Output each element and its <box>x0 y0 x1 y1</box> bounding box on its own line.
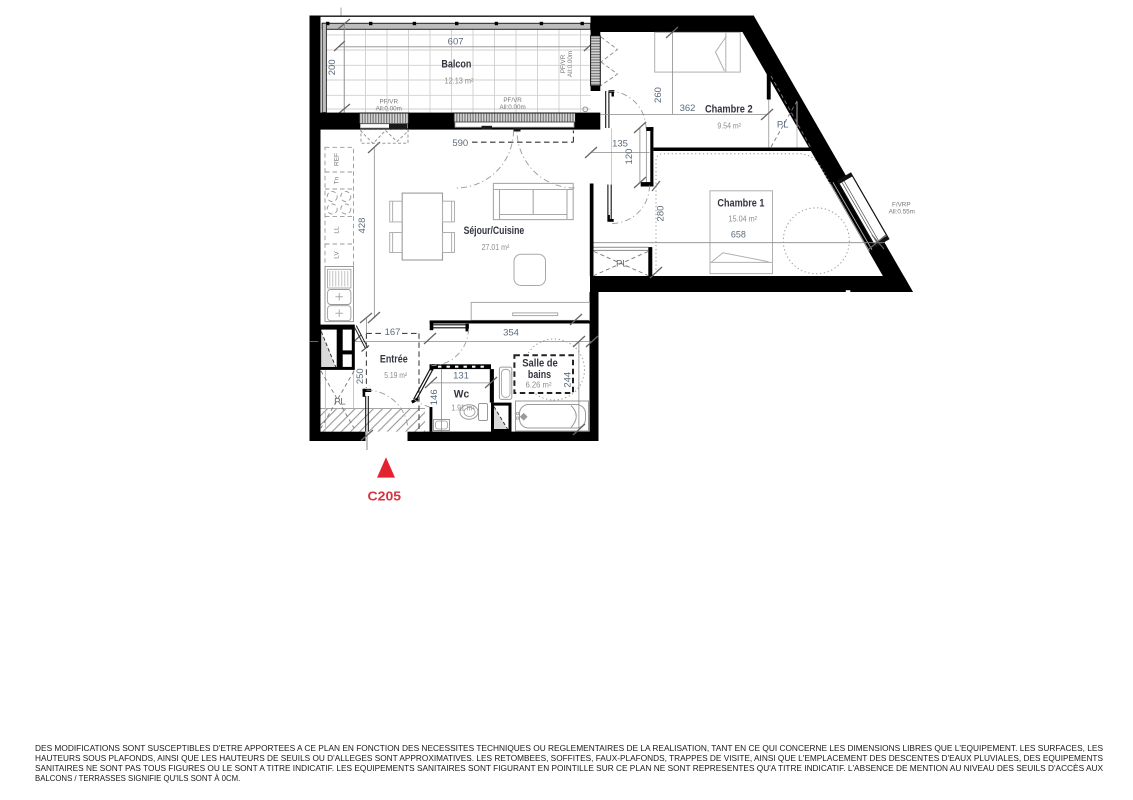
svg-text:250: 250 <box>355 368 366 384</box>
svg-text:LV: LV <box>334 251 341 259</box>
svg-text:135: 135 <box>612 138 628 149</box>
svg-text:PF/VR: PF/VR <box>380 99 399 106</box>
svg-text:Chambre 2: Chambre 2 <box>705 104 753 116</box>
svg-text:REF: REF <box>334 153 341 166</box>
svg-text:200: 200 <box>327 59 338 75</box>
svg-text:All:0.55m: All:0.55m <box>889 209 915 216</box>
svg-text:244: 244 <box>563 372 574 388</box>
svg-text:Wc: Wc <box>454 388 469 400</box>
svg-text:120: 120 <box>624 149 635 165</box>
svg-text:167: 167 <box>385 327 401 338</box>
svg-text:PF/VR: PF/VR <box>503 97 522 104</box>
svg-text:HAUTEURS SOUS PLAFONDS, AINSI: HAUTEURS SOUS PLAFONDS, AINSI QUE LES HA… <box>35 754 1103 763</box>
svg-text:658: 658 <box>731 230 746 241</box>
svg-text:PL: PL <box>334 396 346 407</box>
svg-text:bains: bains <box>528 369 551 381</box>
svg-text:15.04 m²: 15.04 m² <box>729 215 758 224</box>
svg-text:9.54 m²: 9.54 m² <box>717 121 741 130</box>
svg-text:All:0.00m: All:0.00m <box>376 106 402 113</box>
svg-text:260: 260 <box>653 87 664 103</box>
svg-text:All:0.00m: All:0.00m <box>499 104 525 111</box>
svg-text:354: 354 <box>503 327 519 338</box>
svg-text:362: 362 <box>680 103 696 114</box>
svg-text:12.13 m²: 12.13 m² <box>445 77 474 86</box>
svg-text:146: 146 <box>429 389 440 405</box>
svg-text:Balcon: Balcon <box>441 59 471 71</box>
svg-text:131: 131 <box>453 370 469 381</box>
svg-text:428: 428 <box>357 218 368 234</box>
svg-text:Séjour/Cuisine: Séjour/Cuisine <box>464 225 525 237</box>
svg-text:Tn: Tn <box>334 176 341 184</box>
svg-text:F/VRP: F/VRP <box>892 202 911 209</box>
svg-text:Salle de: Salle de <box>522 358 558 370</box>
svg-text:DES MODIFICATIONS SONT SUSCEPT: DES MODIFICATIONS SONT SUSCEPTIBLES D'ET… <box>35 744 1103 753</box>
svg-text:Entrée: Entrée <box>380 353 408 365</box>
svg-text:Chambre 1: Chambre 1 <box>717 198 764 210</box>
svg-text:BALCONS / TERRASSES SIGNIFIE Q: BALCONS / TERRASSES SIGNIFIE QU'ILS SONT… <box>35 774 240 783</box>
svg-text:590: 590 <box>452 138 468 149</box>
svg-text:PL: PL <box>777 120 789 131</box>
svg-text:607: 607 <box>448 37 464 48</box>
svg-text:6.26 m²: 6.26 m² <box>526 381 552 390</box>
svg-text:PF/VR: PF/VR <box>560 54 567 73</box>
svg-text:1.91 m²: 1.91 m² <box>451 404 475 413</box>
svg-text:27.01 m²: 27.01 m² <box>482 243 510 252</box>
svg-text:LL: LL <box>334 226 341 234</box>
svg-text:All:0.00m: All:0.00m <box>567 51 574 77</box>
svg-text:280: 280 <box>656 206 667 222</box>
svg-text:PL: PL <box>616 259 628 270</box>
svg-text:C205: C205 <box>368 488 402 503</box>
svg-text:5.19 m²: 5.19 m² <box>384 371 407 380</box>
svg-text:SANITAIRES NE SONT PAS TOUS FI: SANITAIRES NE SONT PAS TOUS FIGURES OU L… <box>35 764 1104 773</box>
